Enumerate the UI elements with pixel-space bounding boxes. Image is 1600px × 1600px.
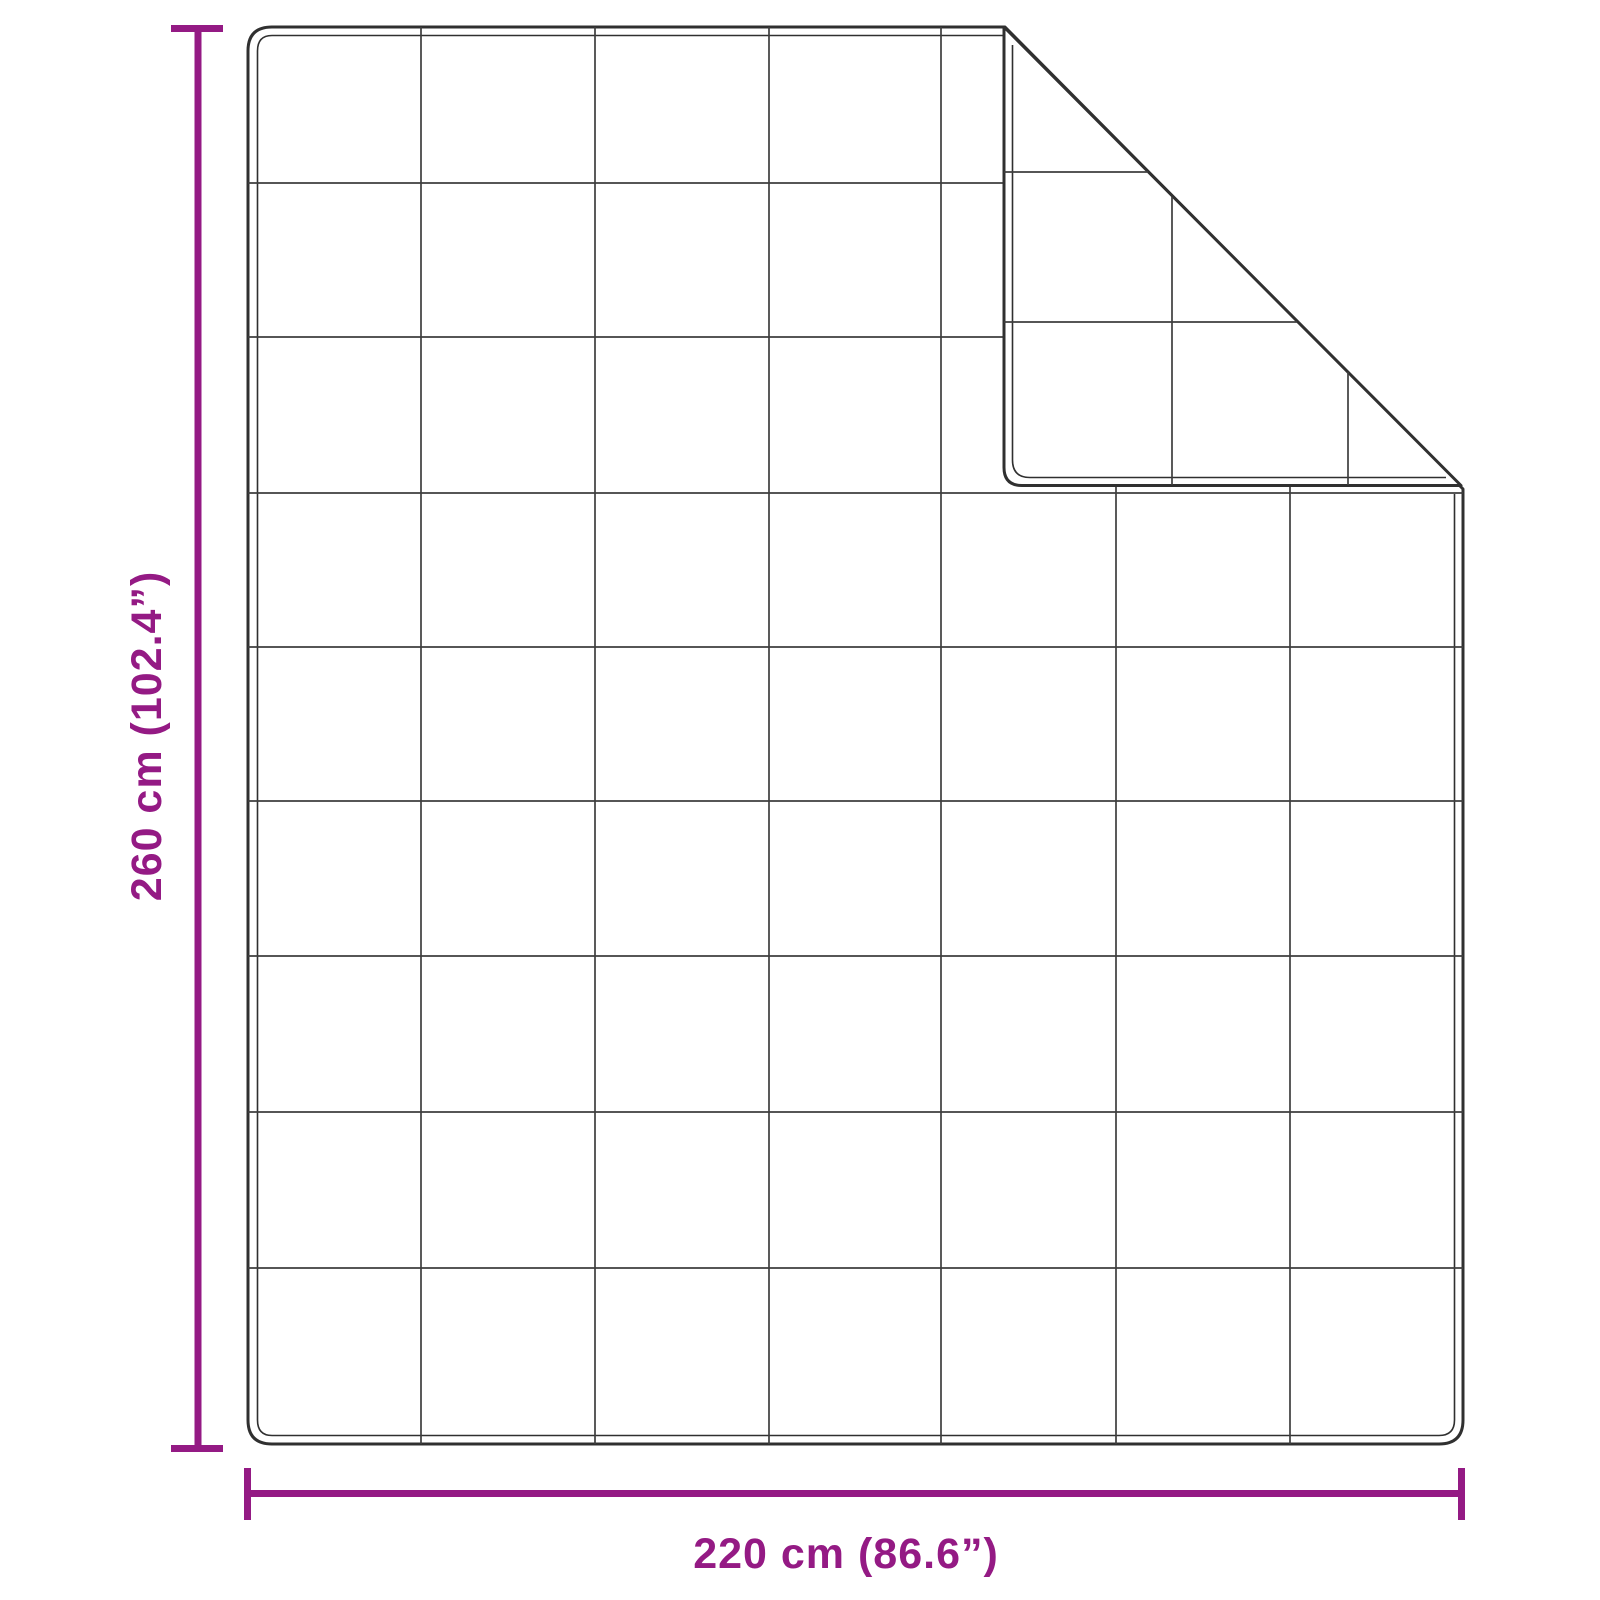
blanket-diagram: 260 cm (102.4”) 220 cm (86.6”) xyxy=(0,0,1600,1600)
blanket-outline xyxy=(248,27,1463,1444)
height-dimension-label: 260 cm (102.4”) xyxy=(123,571,171,902)
folded-corner-outline xyxy=(1004,28,1461,486)
folded-corner xyxy=(1004,28,1461,486)
width-dimension-label: 220 cm (86.6”) xyxy=(693,1530,999,1578)
blanket-body xyxy=(248,27,1463,1444)
height-dimension: 260 cm (102.4”) xyxy=(123,29,223,1449)
product-dimension-diagram: 260 cm (102.4”) 220 cm (86.6”) xyxy=(0,0,1600,1600)
width-dimension: 220 cm (86.6”) xyxy=(248,1468,1462,1578)
